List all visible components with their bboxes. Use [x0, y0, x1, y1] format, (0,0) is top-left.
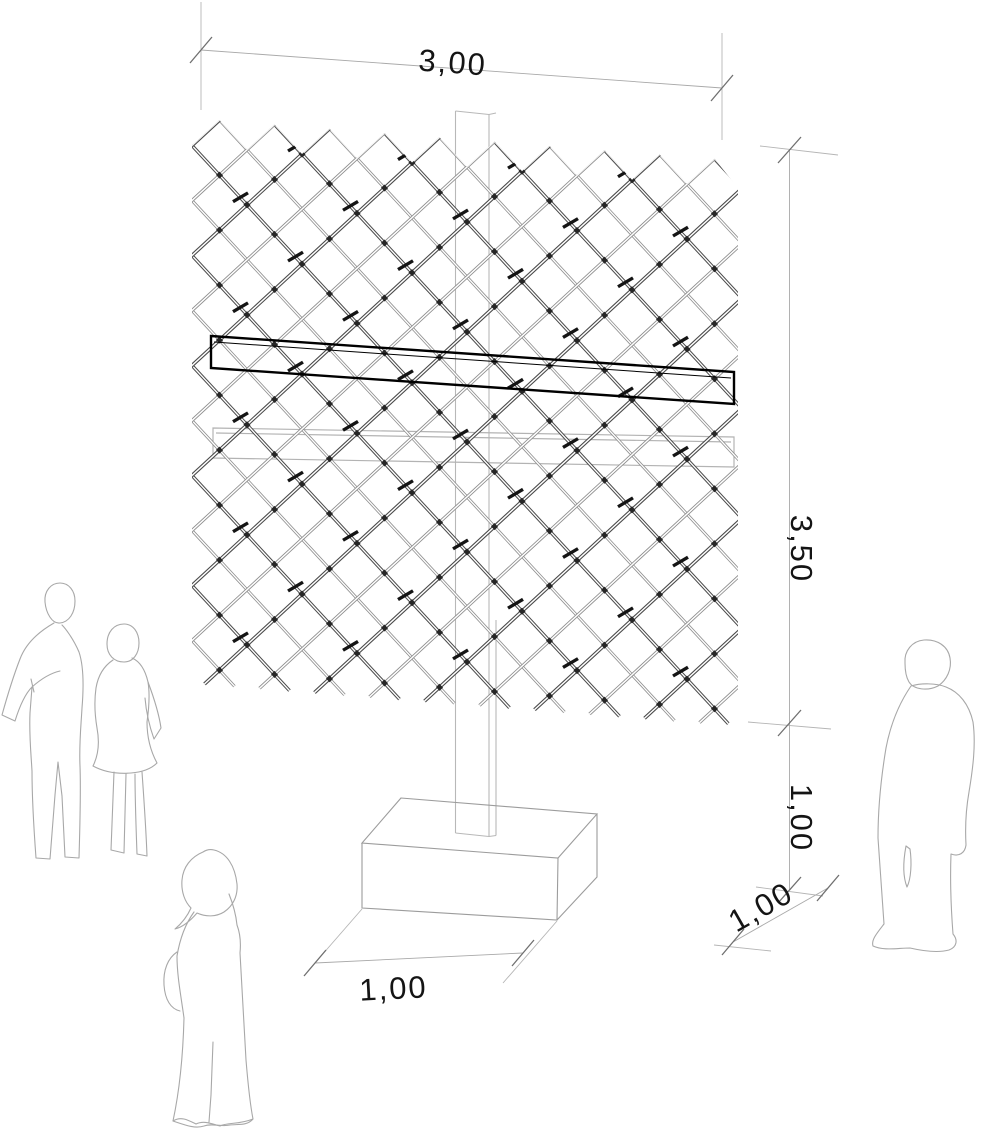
extension-line	[503, 921, 557, 983]
scale-figure-couple	[2, 583, 161, 859]
base-top-face	[362, 798, 597, 858]
couple-man-arm	[31, 671, 60, 692]
lattice-rod	[510, 103, 982, 814]
post-height-label: 1,00	[784, 784, 819, 852]
dimension-line	[315, 953, 523, 963]
lattice-rod	[565, 107, 982, 818]
technical-drawing: 3,00 3,50 1,00 1,00 1,00	[0, 0, 982, 1132]
post-top-cap	[456, 111, 497, 115]
post-bottom-cap	[456, 833, 497, 837]
base-front-face	[362, 843, 558, 920]
couple-man-head	[45, 583, 75, 623]
foundation-base	[362, 798, 597, 920]
center-woman-body	[173, 894, 253, 1127]
scale-figure-man-right	[873, 640, 975, 952]
lattice-rod	[0, 60, 620, 771]
lattice-rod	[0, 40, 370, 751]
panel-height-label: 3,50	[784, 515, 819, 583]
lattice-rod	[0, 34, 290, 745]
couple-man-body	[2, 623, 83, 859]
extension-line	[714, 945, 771, 951]
couple-woman-legs	[111, 772, 147, 856]
couple-woman-head	[107, 624, 139, 662]
lattice-rod	[535, 105, 982, 816]
lattice-rod	[345, 90, 982, 801]
lattice-rod	[0, 58, 590, 769]
lattice-rod	[0, 60, 620, 771]
base-right-face	[557, 814, 597, 920]
lattice-rod	[620, 111, 982, 822]
lattice-rod	[0, 34, 290, 745]
dimension-base-depth: 1,00	[714, 875, 839, 955]
right-man-leg-slit	[904, 846, 911, 887]
dimension-base-width: 1,00	[304, 909, 557, 1008]
lattice-rod	[0, 56, 565, 767]
lattice-rod	[565, 107, 982, 818]
lattice-rod	[590, 109, 982, 820]
center-woman-head	[175, 850, 237, 929]
lattice-rod	[510, 103, 982, 814]
lattice-panel	[0, 30, 982, 827]
base-width-label: 1,00	[358, 969, 428, 1008]
dimension-tick	[817, 875, 839, 901]
lattice-rod	[535, 105, 982, 816]
center-woman-hem	[173, 1042, 253, 1126]
dimension-panel-width: 3,00	[190, 2, 733, 140]
panel-width-label: 3,00	[417, 43, 488, 83]
right-man-body	[873, 684, 975, 952]
lattice-rod	[0, 32, 260, 743]
lattice-rod	[0, 56, 565, 767]
base-depth-label: 1,00	[722, 875, 799, 939]
lattice-rod	[0, 58, 590, 769]
lattice-rod	[0, 40, 370, 751]
right-man-head	[905, 640, 951, 689]
extension-line	[760, 146, 838, 155]
lattice-rod	[345, 90, 982, 801]
lattice-rod	[620, 111, 982, 822]
lattice-rod	[0, 32, 260, 743]
dimension-panel-height: 3,50 1,00	[748, 137, 838, 903]
scale-figure-woman-center	[164, 850, 253, 1127]
